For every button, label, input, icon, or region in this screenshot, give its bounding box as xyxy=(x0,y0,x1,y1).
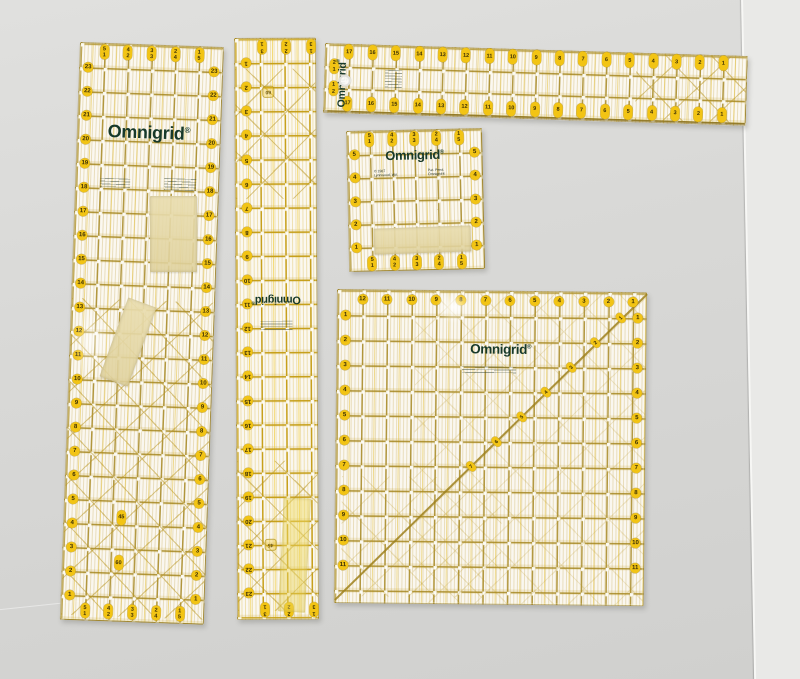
ruler-number-marker: 2 xyxy=(603,297,613,307)
ruler-number-marker: 16 xyxy=(243,420,253,430)
ruler-number-marker: 4 2 xyxy=(387,131,396,146)
ruler-number-marker: 1 xyxy=(472,240,482,250)
reflection-smudge xyxy=(436,291,472,323)
omnigrid-logo: Omnigrid® xyxy=(385,147,444,163)
ruler-number-marker: 14 xyxy=(75,278,85,288)
registered-mark: ® xyxy=(527,344,531,350)
ruler-number-marker: 45 xyxy=(266,540,276,550)
ruler-number-marker: 1 xyxy=(633,313,643,323)
ruler-number-marker: 4 xyxy=(67,518,77,528)
ruler-number-marker: 14 xyxy=(413,98,422,113)
ruler-number-marker: 4 xyxy=(632,388,642,398)
ruler-number-marker: 8 xyxy=(242,227,252,237)
ruler-number-marker: 7 xyxy=(70,446,80,456)
ruler-number-marker: 3 xyxy=(350,196,360,206)
ruler-number-marker: 23 xyxy=(243,588,253,598)
ruler-number-marker: 1 xyxy=(341,310,351,320)
ruler-number-marker: 10 xyxy=(338,535,348,545)
ruler-number-marker: 2 xyxy=(191,570,201,580)
angle-lines xyxy=(413,291,646,605)
ruler-number-marker: 16 xyxy=(366,97,375,112)
ruler-number-marker: 15 xyxy=(76,254,86,264)
ruler-number-marker: 5 xyxy=(349,150,359,160)
ruler-number-marker: 21 xyxy=(81,110,91,120)
ruler-number-marker: 14 xyxy=(201,282,211,292)
registered-mark: ® xyxy=(440,149,444,155)
ruler-number-marker: 10 xyxy=(507,101,516,116)
ruler-number-marker: 3 3 xyxy=(127,605,137,620)
brand-text: Omnigrid xyxy=(107,121,184,144)
ruler-number-marker: 1 xyxy=(241,58,251,68)
ruler-number-marker: 20 xyxy=(80,134,90,144)
photo-of-quilting-rulers: Omnigrid® 5 14 23 32 41 55 14 23 32 41 5… xyxy=(0,0,800,679)
ruler-number-marker: 5 xyxy=(339,410,349,420)
ruler-number-marker: 7 xyxy=(241,203,251,213)
ruler-number-marker: 4 xyxy=(241,130,251,140)
ruler-number-marker: 12 xyxy=(74,326,84,336)
registered-mark: ® xyxy=(252,300,255,305)
ruler-number-marker: 8 xyxy=(553,102,562,117)
ruler-number-marker: 15 xyxy=(391,46,400,61)
ruler-number-marker: 4 xyxy=(647,105,656,120)
ruler-number-marker: 1 xyxy=(191,594,201,604)
ruler-number-marker: 5 xyxy=(530,296,540,306)
ruler-number-marker: 15 xyxy=(202,258,212,268)
ruler-number-marker: 60 xyxy=(114,555,124,570)
registered-mark: ® xyxy=(335,57,340,62)
ruler-number-marker: 7 xyxy=(631,463,641,473)
ruler-number-marker: 12 xyxy=(460,100,469,115)
ruler-3x18-horizontal: Omnigrid® 171615141312111098765432117161… xyxy=(323,43,748,126)
hanging-hole xyxy=(339,74,351,86)
ruler-number-marker: 14 xyxy=(415,46,424,61)
ruler-number-marker: 21 xyxy=(243,540,253,550)
ruler-number-marker: 3 xyxy=(66,542,76,552)
ruler-number-marker: 9 xyxy=(197,402,207,412)
ruler-number-marker: 12 xyxy=(461,48,470,63)
ruler-number-marker: 10 xyxy=(630,538,640,548)
ruler-number-marker: 6 xyxy=(69,470,79,480)
ruler-number-marker: 4 2 xyxy=(123,45,133,60)
ruler-number-marker: 10 xyxy=(72,374,82,384)
ruler-number-marker: 13 xyxy=(438,47,447,62)
ruler-number-marker: 4 xyxy=(350,173,360,183)
ruler-number-marker: 16 xyxy=(77,230,87,240)
ruler-number-marker: 11 xyxy=(630,563,640,573)
ruler-number-marker: 11 xyxy=(382,294,392,304)
ruler-number-marker: 5 xyxy=(632,413,642,423)
ruler-number-marker: 2 4 xyxy=(171,47,181,62)
ruler-number-marker: 2 xyxy=(65,566,75,576)
ruler-number-marker: 5 xyxy=(68,494,78,504)
ruler-number-marker: 18 xyxy=(79,182,89,192)
ruler-number-marker: 12 xyxy=(357,294,367,304)
ruler-number-marker: 5 xyxy=(623,105,632,120)
ruler-number-marker: 4 xyxy=(193,522,203,532)
ruler-number-marker: 11 xyxy=(338,560,348,570)
masking-tape xyxy=(374,225,472,254)
brand-text: Omnigrid xyxy=(385,147,440,163)
ruler-number-marker: 9 xyxy=(631,513,641,523)
ruler-number-marker: 6 xyxy=(195,474,205,484)
ruler-number-marker: 23 xyxy=(83,62,93,72)
ruler-number-marker: 5 1 xyxy=(368,255,377,270)
ruler-number-marker: 5 1 xyxy=(80,603,90,618)
ruler-number-marker: 10 xyxy=(508,49,517,64)
ruler-number-marker: 60 xyxy=(263,87,273,97)
ruler-number-marker: 3 1 xyxy=(257,40,266,55)
fine-print xyxy=(385,70,403,90)
ruler-number-marker: 12 xyxy=(200,330,210,340)
ruler-number-marker: 3 xyxy=(632,363,642,373)
ruler-number-marker: 11 xyxy=(73,350,83,360)
ruler-12x12-square: Omnigrid® 121110987654321123456789101112… xyxy=(334,289,647,606)
ruler-number-marker: 4 xyxy=(340,385,350,395)
masking-tape xyxy=(150,196,197,272)
ruler-number-marker: 20 xyxy=(207,138,217,148)
ruler-number-marker: 1 xyxy=(719,56,728,71)
ruler-number-marker: 23 xyxy=(209,67,219,77)
ruler-number-marker: 4 2 xyxy=(390,255,399,270)
ruler-number-marker: 9 xyxy=(338,510,348,520)
ruler-number-marker: 12 xyxy=(242,323,252,333)
ruler-number-marker: 3 3 xyxy=(409,130,418,145)
ruler-number-marker: 6 xyxy=(600,104,609,119)
ruler-number-marker: 13 xyxy=(436,99,445,114)
ruler-number-marker: 9 xyxy=(532,50,541,65)
ruler-number-marker: 8 xyxy=(339,485,349,495)
registered-mark: ® xyxy=(184,126,190,135)
ruler-number-marker: 3 3 xyxy=(412,254,421,269)
ruler-number-marker: 18 xyxy=(205,186,215,196)
ruler-number-marker: 16 xyxy=(203,234,213,244)
brand-text: Omnigrid xyxy=(470,341,527,357)
ruler-number-marker: 1 5 xyxy=(194,48,204,63)
ruler-number-marker: 3 xyxy=(670,106,679,121)
ruler-number-marker: 13 xyxy=(201,306,211,316)
omnigrid-logo: Omnigrid® xyxy=(470,341,531,357)
ruler-number-marker: 5 xyxy=(241,154,251,164)
ruler-number-marker: 13 xyxy=(242,347,252,357)
ruler-number-marker: 6 xyxy=(631,438,641,448)
ruler-number-marker: 3 xyxy=(241,106,251,116)
ruler-number-marker: 4 xyxy=(648,53,657,68)
ruler-number-marker: 10 xyxy=(242,275,252,285)
ruler-number-marker: 14 xyxy=(242,371,252,381)
omnigrid-logo: Omnigrid® xyxy=(107,121,190,145)
ruler-number-marker: 7 xyxy=(577,103,586,118)
ruler-number-marker: 18 xyxy=(243,468,253,478)
ruler-number-marker: 19 xyxy=(243,492,253,502)
ruler-number-marker: 21 xyxy=(207,115,217,125)
fine-print xyxy=(462,366,516,374)
ruler-number-marker: 3 xyxy=(672,54,681,69)
ruler-number-marker: 8 xyxy=(456,295,466,305)
omnigrid-logo-upside-down: Omnigrid® xyxy=(252,294,301,306)
ruler-number-marker: 4 xyxy=(554,296,564,306)
fine-print-left: © 1987 Lynnwood, WA xyxy=(374,169,397,178)
ruler-number-marker: 9 xyxy=(71,398,81,408)
ruler-number-marker: 1 5 xyxy=(457,253,466,268)
ruler-number-marker: 2 xyxy=(471,217,481,227)
ruler-number-marker: 17 xyxy=(204,210,214,220)
ruler-number-marker: 11 xyxy=(483,100,492,115)
ruler-number-marker: 5 1 xyxy=(100,44,110,59)
ruler-number-marker: 22 xyxy=(243,564,253,574)
ruler-number-marker: 2 xyxy=(241,82,251,92)
ruler-number-marker: 9 xyxy=(530,102,539,117)
ruler-number-marker: 1 xyxy=(65,590,75,600)
ruler-number-marker: 7 xyxy=(578,51,587,66)
ruler-number-marker: 8 xyxy=(196,426,206,436)
ruler-number-marker: 15 xyxy=(242,395,252,405)
ruler-number-marker: 11 xyxy=(199,354,209,364)
ruler-number-marker: 16 xyxy=(368,45,377,60)
ruler-number-marker: 8 xyxy=(70,422,80,432)
ruler-number-marker: 22 xyxy=(82,86,92,96)
ruler-number-marker: 20 xyxy=(243,516,253,526)
ruler-number-marker: 5 xyxy=(470,147,480,157)
ruler-number-marker: 7 xyxy=(196,450,206,460)
ruler-number-marker: 17 xyxy=(78,206,88,216)
ruler-number-marker: 9 xyxy=(242,251,252,261)
ruler-number-marker: 13 xyxy=(75,302,85,312)
ruler-number-marker: 10 xyxy=(198,378,208,388)
ruler-number-marker: 9 xyxy=(431,295,441,305)
ruler-number-marker: 7 xyxy=(339,460,349,470)
ruler-number-marker: 4 xyxy=(470,170,480,180)
ruler-number-marker: 22 xyxy=(208,91,218,101)
ruler-number-marker: 11 xyxy=(242,299,252,309)
ruler-number-marker: 4 2 xyxy=(104,604,114,619)
ruler-number-marker: 10 xyxy=(407,294,417,304)
ruler-number-marker: 15 xyxy=(390,97,399,112)
angle-lines xyxy=(341,476,502,598)
ruler-number-marker: 2 4 xyxy=(432,130,441,145)
ruler-number-marker: 5 xyxy=(625,53,634,68)
ruler-number-marker: 1 5 xyxy=(454,129,463,144)
fine-print-right: Pat. Pend. Omnigrid® xyxy=(428,168,445,177)
ruler-number-marker: 2 2 xyxy=(282,40,291,55)
ruler-number-marker: 3 1 xyxy=(260,602,269,617)
ruler-number-marker: 3 xyxy=(471,194,481,204)
ruler-number-marker: 17 xyxy=(243,444,253,454)
ruler-number-marker: 3 xyxy=(192,546,202,556)
ruler-number-marker: 19 xyxy=(80,158,90,168)
fine-print xyxy=(100,178,130,188)
ruler-number-marker: 1 xyxy=(351,243,361,253)
ruler-number-marker: 6 xyxy=(339,435,349,445)
ruler-number-marker: 2 xyxy=(695,55,704,70)
ruler-number-marker: 6 xyxy=(602,52,611,67)
ruler-number-marker: 3 xyxy=(579,296,589,306)
ruler-number-marker: 11 xyxy=(485,48,494,63)
ruler-number-marker: 2 xyxy=(633,338,643,348)
ruler-number-marker: 3 xyxy=(340,360,350,370)
ruler-number-marker: 5 xyxy=(194,498,204,508)
ruler-number-marker: 2 xyxy=(351,219,361,229)
ruler-number-marker: 7 xyxy=(480,295,490,305)
ruler-number-marker: 1 3 xyxy=(306,39,315,54)
brand-text: Omnigrid xyxy=(255,294,301,306)
ruler-number-marker: 6 xyxy=(505,296,515,306)
ruler-number-marker: 19 xyxy=(206,162,216,172)
ruler-number-marker: 2 xyxy=(694,107,703,122)
ruler-number-marker: 6 xyxy=(241,179,251,189)
fine-print xyxy=(164,178,196,191)
ruler-number-marker: 8 xyxy=(555,51,564,66)
ruler-number-marker: 3 3 xyxy=(147,46,157,61)
ruler-number-marker: 1 3 xyxy=(309,602,318,617)
ruler-number-marker: 2 xyxy=(340,335,350,345)
ruler-number-marker: 45 xyxy=(117,510,127,525)
ruler-number-marker: 1 xyxy=(628,297,638,307)
ruler-number-marker: 1 xyxy=(717,107,726,122)
bias-diagonal-line xyxy=(334,293,647,600)
ruler-number-marker: 2 4 xyxy=(151,606,161,621)
ruler-number-marker: 2 4 xyxy=(435,254,444,269)
fine-print xyxy=(260,321,292,332)
ruler-number-marker: 5 1 xyxy=(365,132,374,147)
ruler-number-marker: 8 xyxy=(631,488,641,498)
ruler-number-marker: 1 5 xyxy=(175,607,185,622)
